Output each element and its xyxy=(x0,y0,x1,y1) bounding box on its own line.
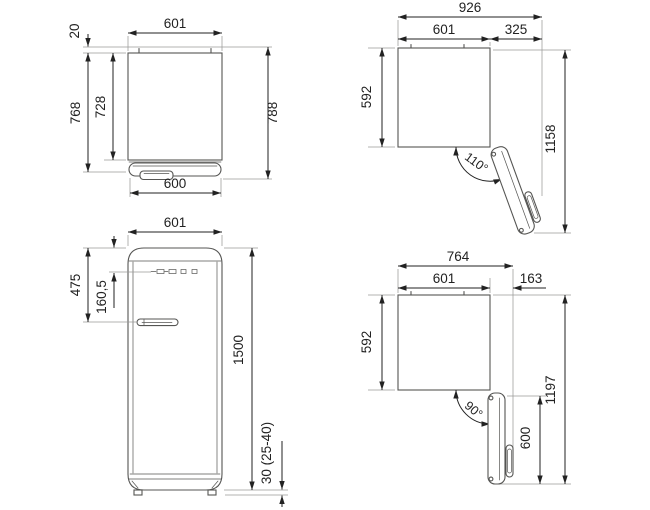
dim-width-body: 601 xyxy=(433,22,456,37)
dim-depth-body: 592 xyxy=(359,86,374,109)
dim-width-top: 601 xyxy=(164,16,187,31)
fridge-front-outline xyxy=(128,248,222,490)
dim-feet: 30 (25-40) xyxy=(259,422,274,484)
dim-width: 601 xyxy=(164,215,187,230)
brand-logo-marks xyxy=(151,270,197,274)
door-open-110 xyxy=(489,142,544,236)
cabinet-top-outline xyxy=(398,295,490,390)
dim-wall-clearance: 20 xyxy=(67,23,82,38)
view-front: 601 475 160,5 1 xyxy=(68,215,288,507)
dim-handle-from-top: 475 xyxy=(68,274,83,297)
dim-door-width: 600 xyxy=(518,427,533,450)
dim-height: 1500 xyxy=(231,335,246,365)
cabinet-top-outline xyxy=(128,53,222,160)
dim-door-projection: 163 xyxy=(520,271,543,286)
dim-width-front: 600 xyxy=(164,176,187,191)
view-top-closed: 601 20 768 728 788 600 xyxy=(67,16,280,197)
dimension-drawing-page: 601 20 768 728 788 600 926 601 325 xyxy=(0,0,650,510)
view-top-open-110: 926 601 325 592 1158 110° xyxy=(359,0,571,236)
dim-depth-body: 592 xyxy=(359,331,374,354)
refrigerator-dimension-drawing: 601 20 768 728 788 600 926 601 325 xyxy=(0,0,650,510)
dim-depth-total: 1158 xyxy=(543,124,558,153)
dim-logo-from-top: 160,5 xyxy=(94,280,109,314)
dim-depth-body: 728 xyxy=(93,96,108,119)
foot xyxy=(134,490,142,495)
dim-door-angle: 90° xyxy=(462,398,485,421)
dim-depth-door: 768 xyxy=(68,102,83,125)
dim-width-total: 764 xyxy=(447,249,470,264)
door-open-90 xyxy=(488,393,513,484)
dim-depth-total: 1197 xyxy=(543,375,558,404)
dim-width-body: 601 xyxy=(433,271,456,286)
dim-width-total: 926 xyxy=(459,0,482,15)
dim-depth-handle: 788 xyxy=(265,102,280,125)
foot xyxy=(208,490,216,495)
cabinet-top-outline xyxy=(398,48,490,147)
view-top-open-90: 764 601 163 592 1197 600 90° xyxy=(359,249,571,484)
dim-door-projection: 325 xyxy=(505,22,528,37)
